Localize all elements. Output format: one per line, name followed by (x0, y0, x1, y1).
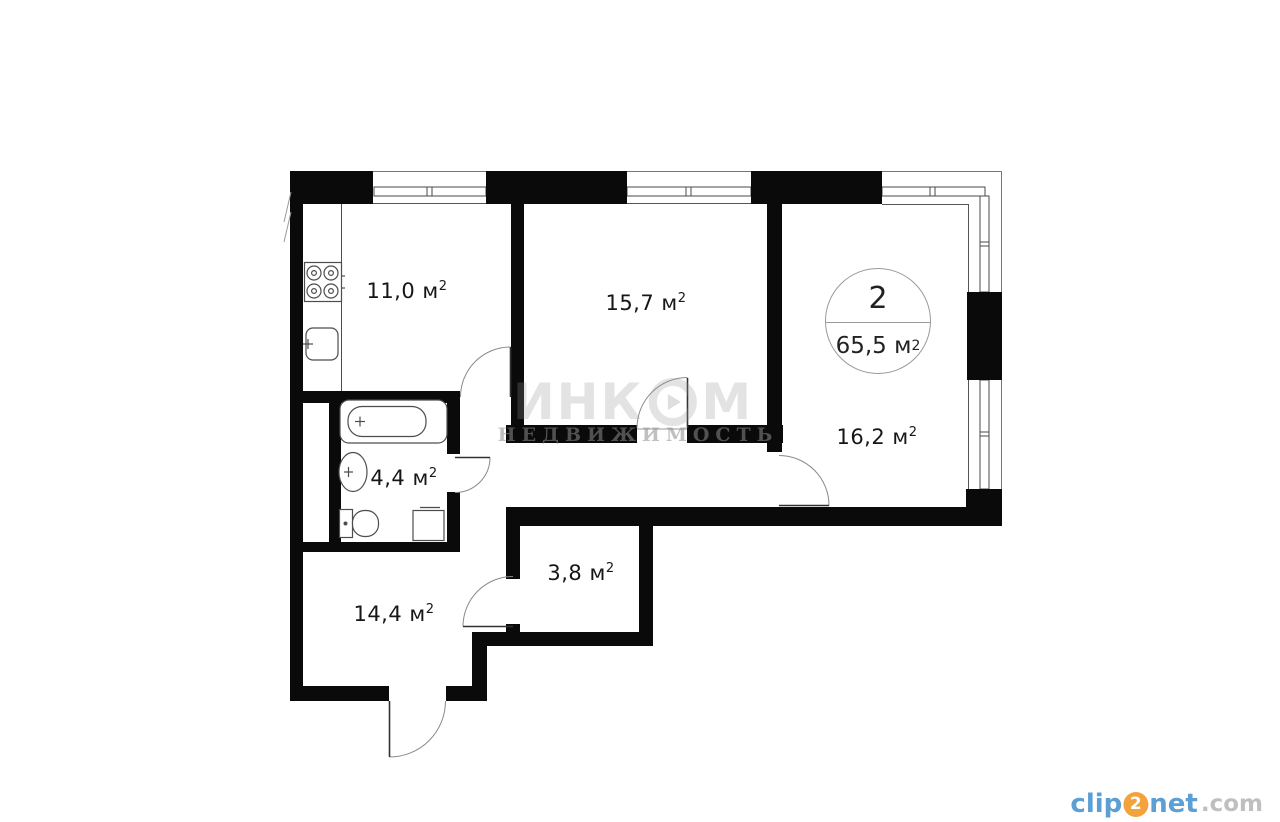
clip2net-2-icon: 2 (1123, 792, 1148, 817)
wall-top-pier-2 (486, 171, 627, 204)
label-bathroom-area: 4,4 м2 (370, 466, 437, 490)
wall-top-pier-3 (751, 171, 882, 204)
window-living-top (882, 187, 985, 196)
wash-basin (339, 453, 367, 492)
fixtures-group (303, 204, 447, 541)
kitchen-sink (303, 328, 338, 360)
wall-wardrobe-right (639, 507, 653, 646)
clip2net-net-text: net (1149, 789, 1198, 819)
stove (305, 263, 346, 302)
kitchen-door-arc (461, 347, 511, 397)
window-living-right-upper (980, 196, 989, 292)
apartment-summary-badge: 2 65,5 м2 (825, 268, 931, 374)
floorplan-image: ИНК М НЕДВИЖИМОСТЬ 2 65,5 м2 11,0 м2 15,… (0, 0, 1280, 822)
inkom-watermark-subtitle: НЕДВИЖИМОСТЬ (498, 424, 779, 446)
wall-corridor-south-band (506, 507, 1002, 526)
wall-right-pillar (967, 292, 1002, 380)
watermark-text-right: М (701, 373, 753, 431)
clip2net-clip-text: clip (1070, 789, 1122, 819)
room-count: 2 (826, 269, 930, 322)
wall-left-exterior (290, 171, 303, 701)
label-kitchen-area: 11,0 м2 (366, 279, 447, 303)
play-icon (668, 394, 681, 410)
bathtub (340, 400, 447, 443)
wall-wardrobe-left-upper (506, 507, 520, 579)
watermark-text-left: ИНК (513, 373, 644, 431)
entrance-door-arc (390, 701, 446, 757)
window-living-right-lower (980, 380, 989, 489)
window-kitchen (374, 187, 486, 196)
label-living-area: 16,2 м2 (836, 425, 917, 449)
wardrobe-door-arc (463, 577, 513, 627)
wall-bath-right-upper (447, 403, 460, 454)
clip2net-dotcom-text: .com (1201, 791, 1263, 817)
wall-hall-bottom-right (446, 686, 487, 701)
washing-machine (413, 508, 444, 541)
shaft-hatch (284, 192, 291, 242)
living-door-arc (779, 456, 829, 506)
wall-wardrobe-bottom (472, 632, 652, 646)
window-bedroom (627, 187, 751, 196)
wall-bath-bottom (303, 542, 460, 552)
wall-hall-bottom-left (290, 686, 389, 701)
wall-bedroom-living (767, 203, 782, 452)
label-wardrobe-area: 3,8 м2 (547, 561, 614, 585)
wall-top-pier-1 (290, 171, 373, 204)
bathroom-door-arc (455, 458, 490, 493)
label-bedroom-area: 15,7 м2 (605, 291, 686, 315)
total-area: 65,5 м2 (826, 323, 930, 374)
clip2net-logo: clip 2 net .com (1070, 789, 1263, 819)
inkom-o-ring-icon (648, 378, 696, 426)
inkom-watermark-brand: ИНК М (513, 373, 753, 431)
toilet (340, 510, 379, 538)
label-hallway-area: 14,4 м2 (353, 602, 434, 626)
